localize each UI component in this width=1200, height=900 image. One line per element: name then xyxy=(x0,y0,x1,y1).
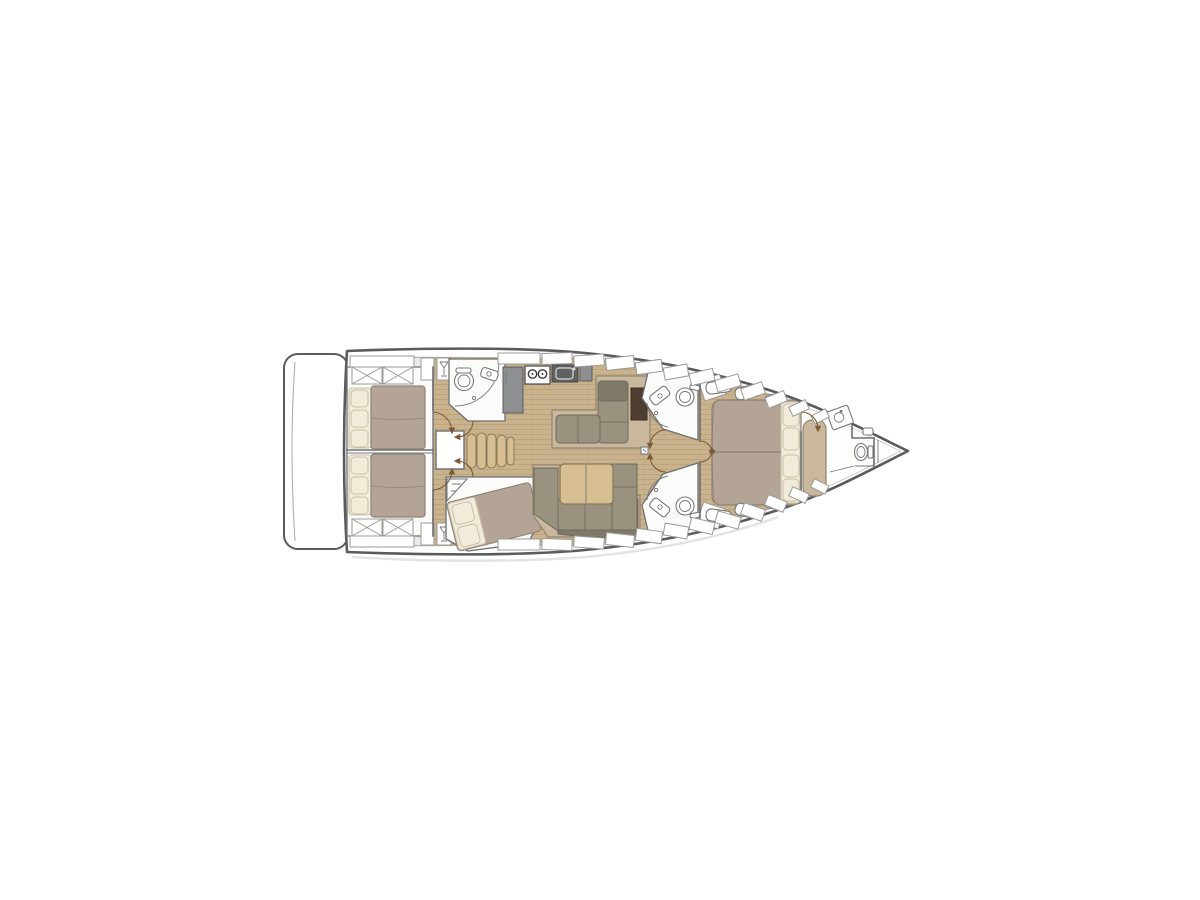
pillow xyxy=(351,497,368,514)
aft-lockers-top xyxy=(352,367,413,384)
pillow xyxy=(351,410,368,427)
worktop xyxy=(580,366,592,381)
aft-head xyxy=(449,359,505,421)
aft-lockers-bottom xyxy=(352,519,413,536)
aft-berth-bottom xyxy=(349,454,425,517)
yacht-floor-plan xyxy=(0,0,1200,900)
shelf xyxy=(863,428,873,435)
dinette xyxy=(533,464,640,538)
settee-back-cushion xyxy=(598,381,628,401)
pillow xyxy=(351,477,368,494)
dinette-seat-right xyxy=(612,464,637,530)
swim-platform xyxy=(284,354,348,549)
pillow xyxy=(783,428,799,450)
pillow xyxy=(351,457,368,474)
pillow xyxy=(351,430,368,447)
companionway-steps xyxy=(467,433,514,469)
island-berth xyxy=(712,400,801,505)
aft-berth-top xyxy=(349,386,425,449)
mattress xyxy=(371,454,425,517)
louver-locker xyxy=(421,358,434,380)
pillow xyxy=(351,390,368,407)
stove xyxy=(525,366,550,384)
louver-locker xyxy=(421,523,434,545)
saloon-table xyxy=(560,464,613,504)
toilet xyxy=(455,368,474,391)
pillow xyxy=(451,501,475,525)
toilet xyxy=(855,444,874,461)
pillow xyxy=(457,523,481,547)
mast-step xyxy=(641,447,648,454)
aft-cabins xyxy=(347,367,433,536)
page xyxy=(0,0,1200,900)
pillow xyxy=(783,455,799,477)
mattress xyxy=(371,386,425,449)
